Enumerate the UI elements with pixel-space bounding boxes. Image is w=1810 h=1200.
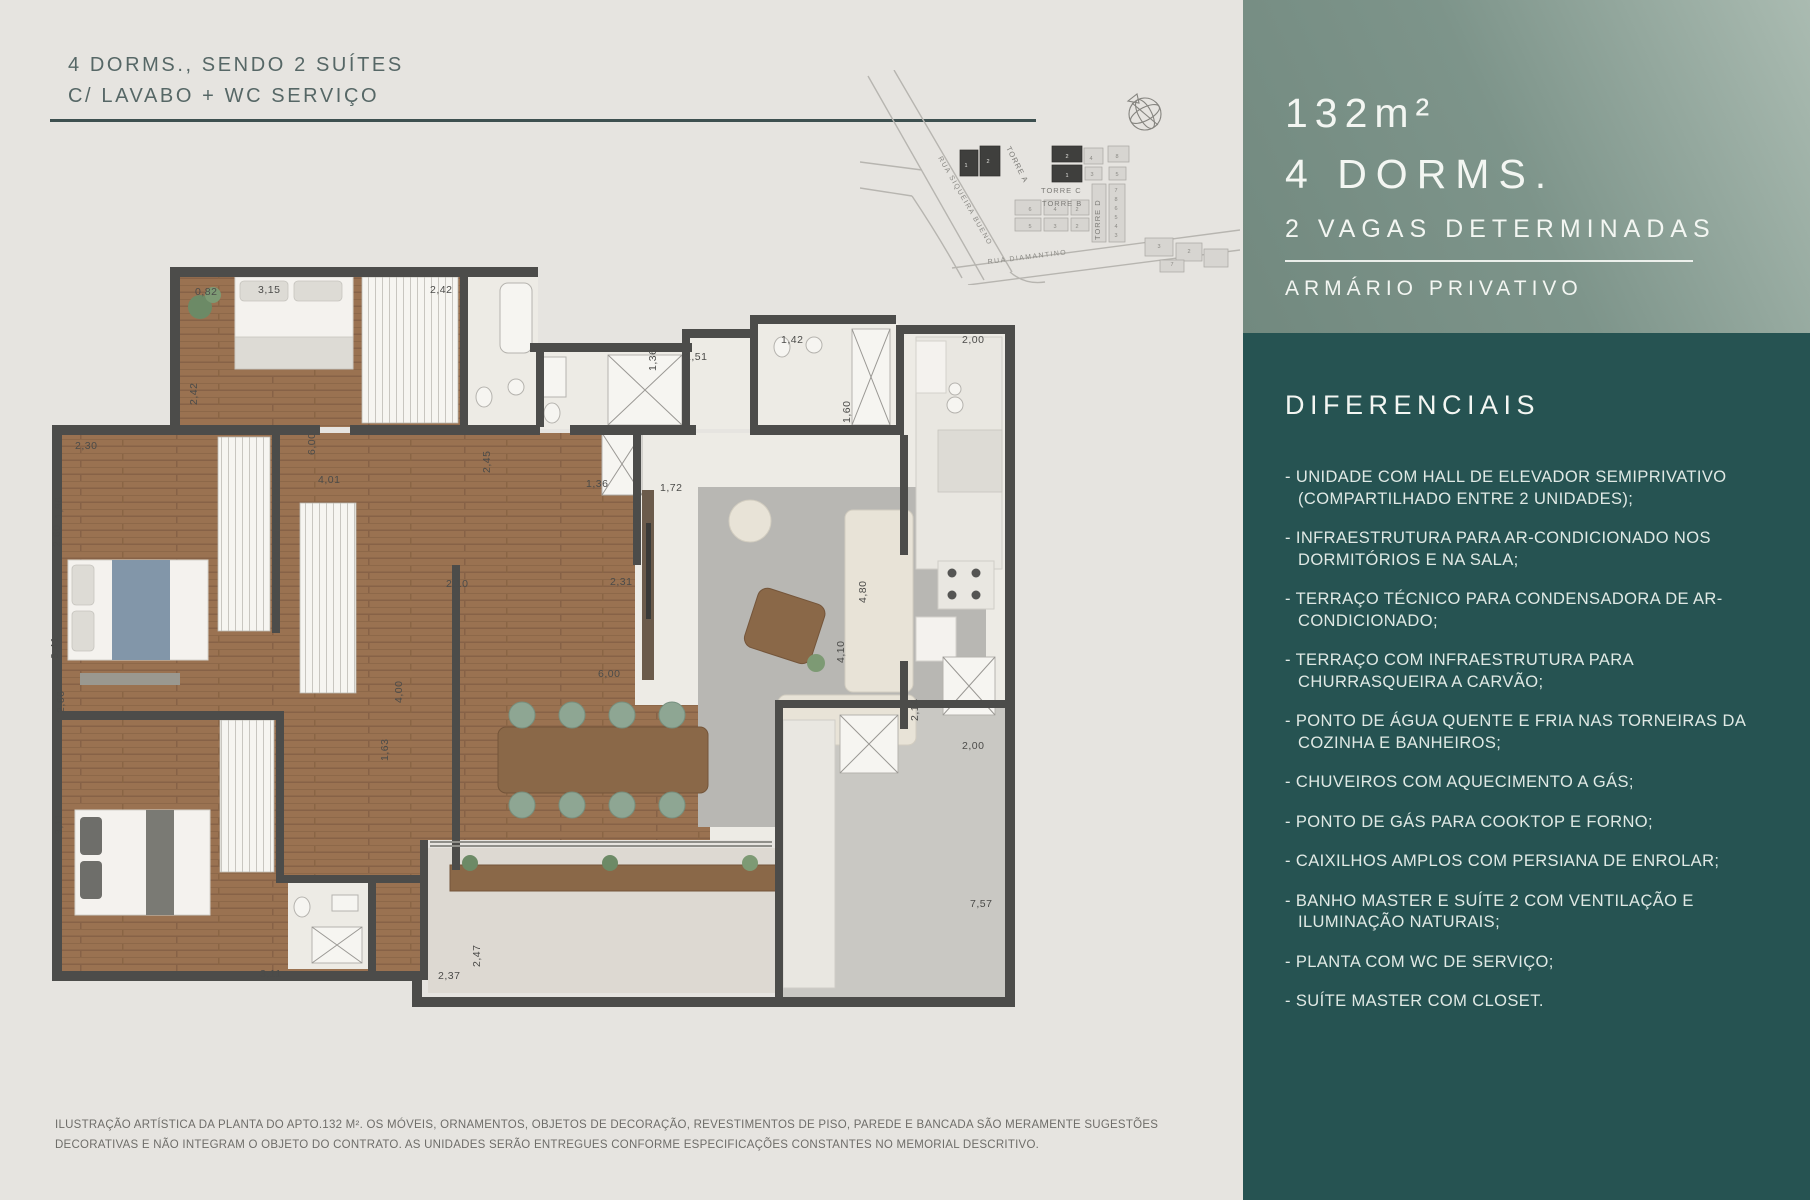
building-unit-number: 5 (1028, 224, 1031, 230)
vanity (542, 357, 566, 397)
dimension-label: 2,10 (446, 578, 468, 590)
dimension-label: 4,00 (393, 681, 405, 703)
dimension-label: 2,42 (188, 383, 200, 405)
dimension-label: 1,86 (53, 497, 65, 519)
toilet (476, 387, 492, 407)
dimension-label: 2,00 (962, 334, 984, 346)
refrigerator (916, 341, 946, 393)
building-unit-number: 6 (1028, 207, 1031, 213)
dimension-label: 1,51 (685, 351, 707, 363)
page-title-line2: C/ LAVABO + WC SERVIÇO (68, 81, 404, 112)
compass-icon (1128, 94, 1162, 131)
dimension-label: 2,60 (51, 525, 63, 547)
dimension-label: 1,42 (781, 334, 803, 346)
info-panel-header: 132m² 4 DORMS. 2 VAGAS DETERMINADAS ARMÁ… (1243, 0, 1810, 333)
floor-plan: 0,823,152,422,422,451,361,721,511,361,42… (50, 265, 1020, 1015)
building-unit-number: 8 (1114, 197, 1117, 203)
diferencial-item: - CHUVEIROS COM AQUECIMENTO A GÁS; (1285, 772, 1747, 794)
bed-bench (80, 673, 180, 685)
cooktop (938, 561, 994, 609)
dimension-label: 2,66 (55, 691, 67, 713)
dimension-label: 2,42 (430, 284, 452, 296)
dining-table (498, 727, 708, 793)
diferencial-item: - UNIDADE COM HALL DE ELEVADOR SEMIPRIVA… (1285, 467, 1747, 510)
building-unit-number: 3 (1090, 172, 1093, 178)
panel-divider (1285, 260, 1693, 262)
wardrobe (300, 503, 356, 693)
dimension-label: 2,31 (610, 576, 632, 588)
building-unit-number: 8 (1115, 154, 1118, 160)
unit-storage: ARMÁRIO PRIVATIVO (1285, 277, 1780, 301)
tower-a-label: TORRE A (1004, 145, 1030, 185)
dimension-label: 4,80 (857, 581, 869, 603)
oven-tower (916, 617, 956, 661)
page-title: 4 DORMS., SENDO 2 SUÍTES C/ LAVABO + WC … (68, 50, 404, 112)
dimension-label: 1,72 (660, 482, 682, 494)
unit-dorms: 4 DORMS. (1285, 151, 1780, 198)
diferencial-item: - PONTO DE ÁGUA QUENTE E FRIA NAS TORNEI… (1285, 711, 1747, 754)
highlighted-tower-unit (980, 146, 1000, 176)
building-unit-number: 3 (1053, 224, 1056, 230)
terrace-sliding-door (430, 842, 772, 846)
sink (806, 337, 822, 353)
tv (646, 523, 651, 619)
dimension-label: 2,47 (471, 945, 483, 967)
building-unit-number: 5 (1114, 215, 1117, 221)
dimension-label: 2,37 (438, 970, 460, 982)
tower-unit-number: 2 (986, 159, 989, 165)
diferencial-item: - INFRAESTRUTURA PARA AR-CONDICIONADO NO… (1285, 528, 1747, 571)
tower-unit-number: 1 (964, 163, 967, 169)
kitchen-cabinet (938, 430, 1002, 492)
site-map: 1221 4835786543642532327 RUA SIQUEIRA BU… (860, 70, 1240, 285)
building-unit-number: 2 (1187, 249, 1190, 255)
building-unit-number: 5 (1115, 172, 1118, 178)
dimension-label: 1,60 (841, 401, 853, 423)
dimension-label: 3,41 (50, 637, 61, 659)
diferencial-item: - BANHO MASTER E SUÍTE 2 COM VENTILAÇÃO … (1285, 891, 1747, 934)
dimension-label: 1,36 (647, 349, 659, 371)
dimension-label: 2,30 (75, 440, 97, 452)
building-unit-number: 3 (1114, 233, 1117, 239)
disclaimer-line2: DECORATIVAS E NÃO INTEGRAM O OBJETO DO C… (55, 1135, 1235, 1155)
building-unit-number: 2 (1075, 224, 1078, 230)
dimension-label: 6,00 (306, 433, 318, 455)
tower-unit-number: 1 (1065, 173, 1068, 179)
sink (332, 895, 358, 911)
dimension-label: 3,15 (258, 284, 280, 296)
gourmet-counter (783, 720, 835, 988)
diferencial-item: - TERRAÇO COM INFRAESTRUTURA PARA CHURRA… (1285, 650, 1747, 693)
building-unit-number: 7 (1170, 262, 1173, 268)
dimension-label: 3,11 (53, 813, 65, 835)
diferencial-item: - PLANTA COM WC DE SERVIÇO; (1285, 952, 1747, 974)
wardrobe (220, 720, 274, 872)
building-unit-number: 7 (1114, 188, 1117, 194)
bathtub (500, 283, 532, 353)
disclaimer-line1: ILUSTRAÇÃO ARTÍSTICA DA PLANTA DO APTO.1… (55, 1115, 1235, 1135)
tower-unit-number: 2 (1065, 154, 1068, 160)
tower-b-label: TORRE B (1042, 199, 1082, 208)
tower-d-label: TORRE D (1093, 199, 1102, 240)
building-unit-number: 6 (1114, 206, 1117, 212)
brochure-page: 4 DORMS., SENDO 2 SUÍTES C/ LAVABO + WC … (0, 0, 1810, 1200)
unit-parking: 2 VAGAS DETERMINADAS (1285, 215, 1780, 244)
unit-area: 132m² (1285, 90, 1780, 137)
info-panel: 132m² 4 DORMS. 2 VAGAS DETERMINADAS ARMÁ… (1243, 0, 1810, 1200)
dimension-label: 0,82 (195, 286, 217, 298)
dimension-label: 3,11 (260, 968, 282, 980)
sink (508, 379, 524, 395)
highlighted-tower-unit (960, 150, 978, 176)
diferencial-item: - PONTO DE GÁS PARA COOKTOP E FORNO; (1285, 812, 1747, 834)
dimension-label: 7,57 (970, 898, 992, 910)
dimension-label: 1,36 (586, 478, 608, 490)
building-unit-number: 3 (1157, 244, 1160, 250)
diferenciais-list: - UNIDADE COM HALL DE ELEVADOR SEMIPRIVA… (1285, 467, 1747, 1013)
wardrobe (218, 437, 270, 631)
toilet (544, 403, 560, 423)
dimension-label: 2,00 (962, 740, 984, 752)
dimension-label: 2,14 (909, 699, 921, 721)
toilet (294, 897, 310, 917)
dimension-label: 2,45 (481, 451, 493, 473)
disclaimer: ILUSTRAÇÃO ARTÍSTICA DA PLANTA DO APTO.1… (55, 1115, 1235, 1155)
diferenciais-section: DIFERENCIAIS - UNIDADE COM HALL DE ELEVA… (1243, 333, 1810, 1200)
building-unit-number: 4 (1114, 224, 1117, 230)
dimension-label: 4,01 (318, 474, 340, 486)
building-unit-number: 4 (1089, 156, 1092, 162)
bed-blanket-blue (112, 560, 170, 660)
dimension-label: 1,63 (379, 739, 391, 761)
page-title-line1: 4 DORMS., SENDO 2 SUÍTES (68, 50, 404, 81)
dimension-label: 4,10 (835, 641, 847, 663)
diferencial-item: - TERRAÇO TÉCNICO PARA CONDENSADORA DE A… (1285, 589, 1747, 632)
diferencial-item: - CAIXILHOS AMPLOS COM PERSIANA DE ENROL… (1285, 851, 1747, 873)
dimension-label: 6,00 (598, 668, 620, 680)
armchair (729, 500, 771, 542)
tower-c-label: TORRE C (1041, 186, 1082, 195)
wardrobe (362, 277, 458, 423)
diferencial-item: - SUÍTE MASTER COM CLOSET. (1285, 991, 1747, 1013)
diferenciais-title: DIFERENCIAIS (1285, 390, 1780, 421)
